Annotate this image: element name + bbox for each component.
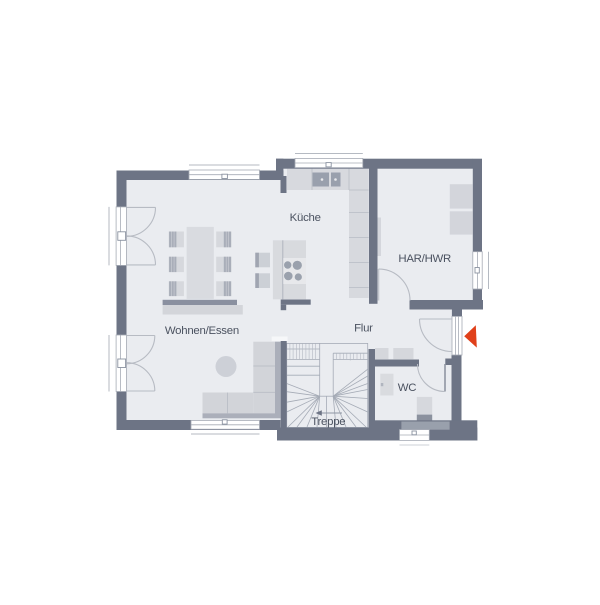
svg-text:Küche: Küche xyxy=(290,212,321,224)
svg-text:Flur: Flur xyxy=(354,323,373,335)
svg-text:Wohnen/Essen: Wohnen/Essen xyxy=(165,325,239,337)
svg-text:HAR/HWR: HAR/HWR xyxy=(398,253,451,265)
svg-text:WC: WC xyxy=(398,382,417,394)
svg-text:Treppe: Treppe xyxy=(311,416,345,428)
